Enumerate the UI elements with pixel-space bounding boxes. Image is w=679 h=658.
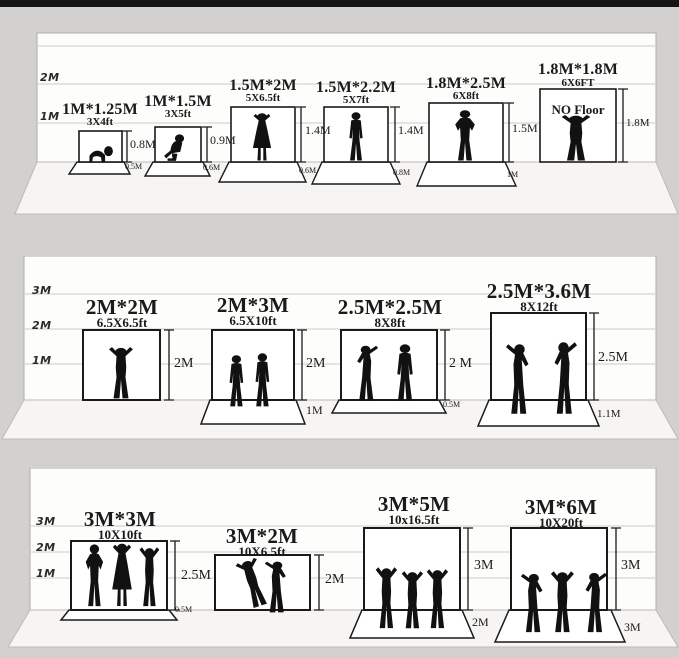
size-subtitle: 10X6.5ft [238, 545, 285, 558]
floor-dimension-label: 0.8M [393, 169, 410, 177]
floor-dimension-label: 0.5M [125, 163, 142, 171]
floor-dimension-label: 0.5M [443, 401, 460, 409]
height-dimension-label: 0.9M [210, 134, 236, 146]
height-dimension-label: 0.8M [130, 138, 156, 150]
scale-label: 2M [32, 320, 52, 331]
floor-dimension-label: 1M [306, 404, 323, 416]
height-dimension-label: 2M [306, 357, 325, 371]
size-subtitle: 5X7ft [343, 95, 369, 106]
scale-label: 2M [36, 542, 56, 553]
floor-dimension-label: 1.1M [597, 409, 621, 420]
size-subtitle: 5X6.5ft [246, 93, 281, 104]
size-subtitle: 8X12ft [520, 300, 558, 313]
height-dimension-label: 2.5M [181, 569, 211, 583]
scale-label: 3M [36, 516, 56, 527]
size-subtitle: 6.5X6.5ft [97, 316, 148, 329]
size-subtitle: 6.5X10ft [229, 314, 276, 327]
size-subtitle: 6X6FT [562, 78, 595, 89]
size-subtitle: 3X4ft [87, 117, 113, 128]
scale-label: 1M [36, 568, 56, 579]
height-dimension-label: 2M [325, 573, 344, 587]
height-dimension-label: 1.5M [512, 122, 538, 134]
floor-dimension-label: 3M [624, 621, 641, 633]
floor-dimension-label: 0.6M [203, 164, 220, 172]
size-subtitle: 3X5ft [165, 109, 191, 120]
size-subtitle: 10X10ft [98, 528, 142, 541]
height-dimension-label: 3M [621, 559, 640, 573]
height-dimension-label: 1.4M [398, 124, 424, 136]
size-title: 1.8M*1.8M [538, 62, 618, 78]
height-dimension-label: 2 M [449, 357, 472, 371]
scale-label: 3M [32, 285, 52, 296]
floor-dimension-label: 1M [507, 171, 518, 179]
height-dimension-label: 3M [474, 559, 493, 573]
scale-label: 2M [40, 72, 60, 83]
height-dimension-label: 2M [174, 357, 193, 371]
size-subtitle: 6X8ft [453, 91, 479, 102]
floor-dimension-label: 0.5M [175, 606, 192, 614]
height-dimension-label: 1.4M [305, 124, 331, 136]
height-dimension-label: 2.5M [598, 351, 628, 365]
size-subtitle: 10x16.5ft [389, 513, 440, 526]
panel-small-sizes [0, 7, 679, 256]
top-border-bar [0, 0, 679, 7]
scale-label: 1M [40, 111, 60, 122]
height-dimension-label: 1.8M [626, 118, 650, 129]
size-subtitle: 10X20ft [539, 516, 583, 529]
size-subtitle: 8X8ft [374, 316, 405, 329]
scale-label: 1M [32, 355, 52, 366]
backdrop-size-chart: { "colors": { "background": "#d4d3d1", "… [0, 0, 679, 658]
floor-dimension-label: 0.6M [299, 167, 316, 175]
no-floor-label: NO Floor [551, 103, 604, 116]
floor-dimension-label: 2M [472, 616, 489, 628]
